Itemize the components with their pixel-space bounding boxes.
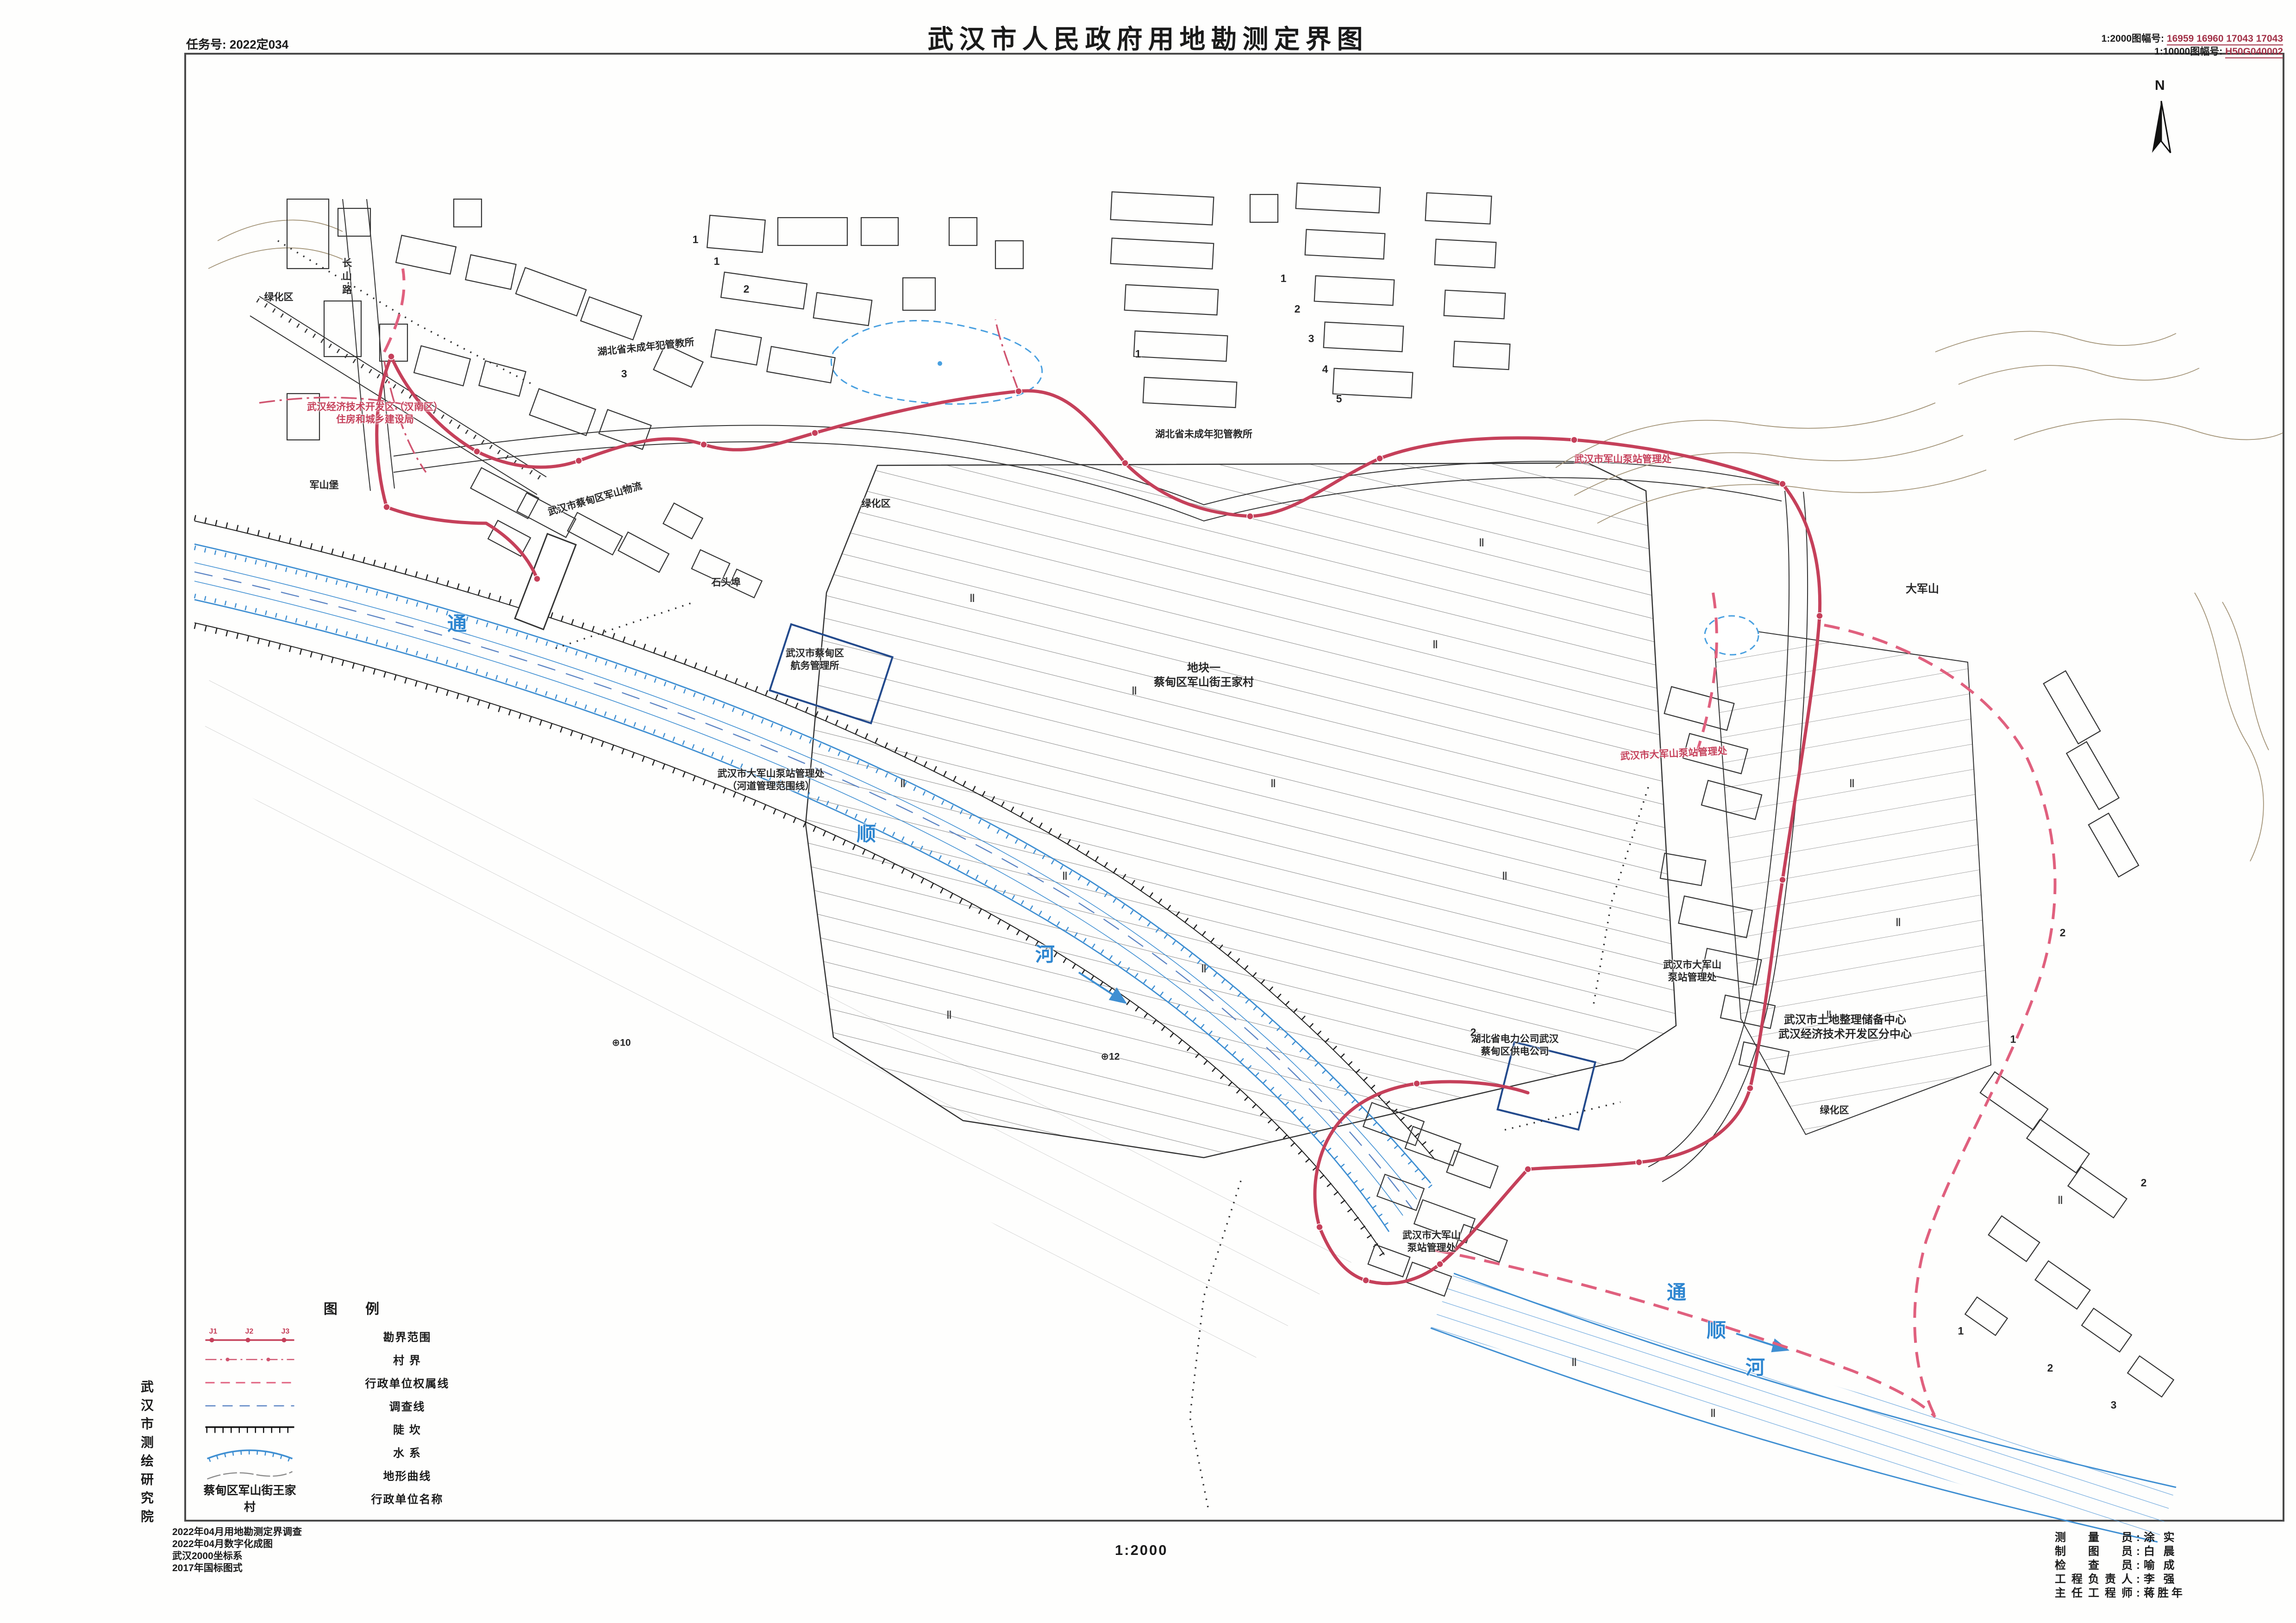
legend-scarp-sample-icon — [200, 1418, 300, 1439]
svg-text:J2: J2 — [245, 1328, 254, 1335]
north-arrow-icon — [2152, 101, 2171, 153]
map-scale: 1:2000 — [1115, 1542, 1168, 1559]
sheet-scale-10000-value: H50G040002 — [2225, 46, 2283, 58]
svg-text:‖: ‖ — [1479, 537, 1484, 549]
note-line: 2022年04月用地勘测定界调查 — [172, 1526, 302, 1538]
legend-scarp-label: 陡 坎 — [300, 1421, 515, 1437]
legend-row-village: 村 界 — [200, 1347, 515, 1371]
legend-title: 图 例 — [200, 1297, 515, 1318]
legend-boundary-label: 勘界范围 — [300, 1328, 515, 1344]
svg-text:‖: ‖ — [1132, 685, 1137, 697]
legend-boundary-sample-icon: J1 J2 J3 — [200, 1325, 300, 1347]
signature-row: 主任工程师: 蒋胜年 — [2055, 1586, 2185, 1600]
note-line: 2022年04月数字化成图 — [172, 1538, 302, 1550]
signature-block: 测 量 员: 涂 实 制 图 员: 白 晨 检 查 员: 喻 成 工程负责人: … — [2055, 1531, 2185, 1600]
signature-row: 测 量 员: 涂 实 — [2055, 1531, 2185, 1545]
legend-row-admin-name: 蔡甸区军山街王家村 行政单位名称 — [200, 1486, 515, 1510]
legend-village-sample-icon — [200, 1348, 300, 1370]
legend-admin-name-sample: 蔡甸区军山街王家村 — [200, 1481, 300, 1515]
svg-text:‖: ‖ — [1433, 639, 1438, 651]
legend-row-water: 水 系 — [200, 1440, 515, 1463]
legend-survey-label: 调查线 — [300, 1397, 515, 1414]
legend-admin-label: 行政单位权属线 — [300, 1374, 515, 1391]
svg-text:‖: ‖ — [946, 1009, 952, 1021]
legend-survey-sample-icon — [200, 1395, 300, 1416]
sheet-scale-2000-label: 1:2000图幅号: — [2102, 33, 2164, 44]
svg-text:‖: ‖ — [1896, 916, 1901, 929]
note-line: 武汉2000坐标系 — [172, 1550, 302, 1562]
svg-text:‖: ‖ — [1710, 1407, 1716, 1420]
svg-text:‖: ‖ — [1270, 777, 1276, 790]
svg-text:‖: ‖ — [900, 777, 906, 790]
legend: 图 例 J1 J2 J3 勘界范围 村 界 行政单位权属线 — [200, 1297, 515, 1510]
legend-row-survey: 调查线 — [200, 1394, 515, 1417]
svg-text:J3: J3 — [282, 1328, 290, 1335]
legend-row-scarp: 陡 坎 — [200, 1417, 515, 1440]
svg-text:J1: J1 — [209, 1328, 218, 1335]
svg-text:‖: ‖ — [2058, 1194, 2063, 1207]
legend-row-admin: 行政单位权属线 — [200, 1371, 515, 1394]
signature-row: 制 图 员: 白 晨 — [2055, 1545, 2185, 1559]
svg-text:‖: ‖ — [970, 592, 975, 605]
map-notes: 2022年04月用地勘测定界调查 2022年04月数字化成图 武汉2000坐标系… — [172, 1526, 302, 1574]
legend-row-boundary: J1 J2 J3 勘界范围 — [200, 1324, 515, 1347]
svg-text:‖: ‖ — [1201, 963, 1207, 975]
svg-text:‖: ‖ — [1826, 1009, 1832, 1021]
svg-text:‖: ‖ — [1502, 870, 1508, 883]
organization-name: 武汉市测绘研究院 — [137, 1380, 156, 1528]
note-line: 2017年国标图式 — [172, 1562, 302, 1574]
legend-water-sample-icon — [200, 1441, 300, 1462]
svg-text:‖: ‖ — [1571, 1356, 1577, 1369]
sheet-scale-10000-label: 1:10000图幅号: — [2154, 46, 2222, 57]
svg-text:‖: ‖ — [1062, 870, 1068, 883]
task-number: 任务号: 2022定034 — [186, 35, 288, 52]
page-title: 武汉市人民政府用地勘测定界图 — [928, 19, 1369, 56]
signature-row: 检 查 员: 喻 成 — [2055, 1559, 2185, 1573]
svg-text:‖: ‖ — [1849, 777, 1855, 790]
legend-village-label: 村 界 — [300, 1351, 515, 1367]
north-label: N — [2155, 78, 2165, 94]
signature-row: 工程负责人: 李 强 — [2055, 1573, 2185, 1586]
legend-contour-label: 地形曲线 — [300, 1467, 515, 1483]
legend-water-label: 水 系 — [300, 1444, 515, 1460]
sheet-scale-2000-value: 16959 16960 17043 17043 — [2167, 33, 2283, 45]
survey-map-sheet: 任务号: 2022定034 武汉市人民政府用地勘测定界图 1:2000图幅号: … — [0, 0, 2296, 1623]
legend-admin-sample-icon — [200, 1372, 300, 1393]
legend-admin-name-label: 行政单位名称 — [300, 1490, 515, 1506]
sheet-numbers: 1:2000图幅号: 16959 16960 17043 17043 1:100… — [2102, 32, 2283, 58]
